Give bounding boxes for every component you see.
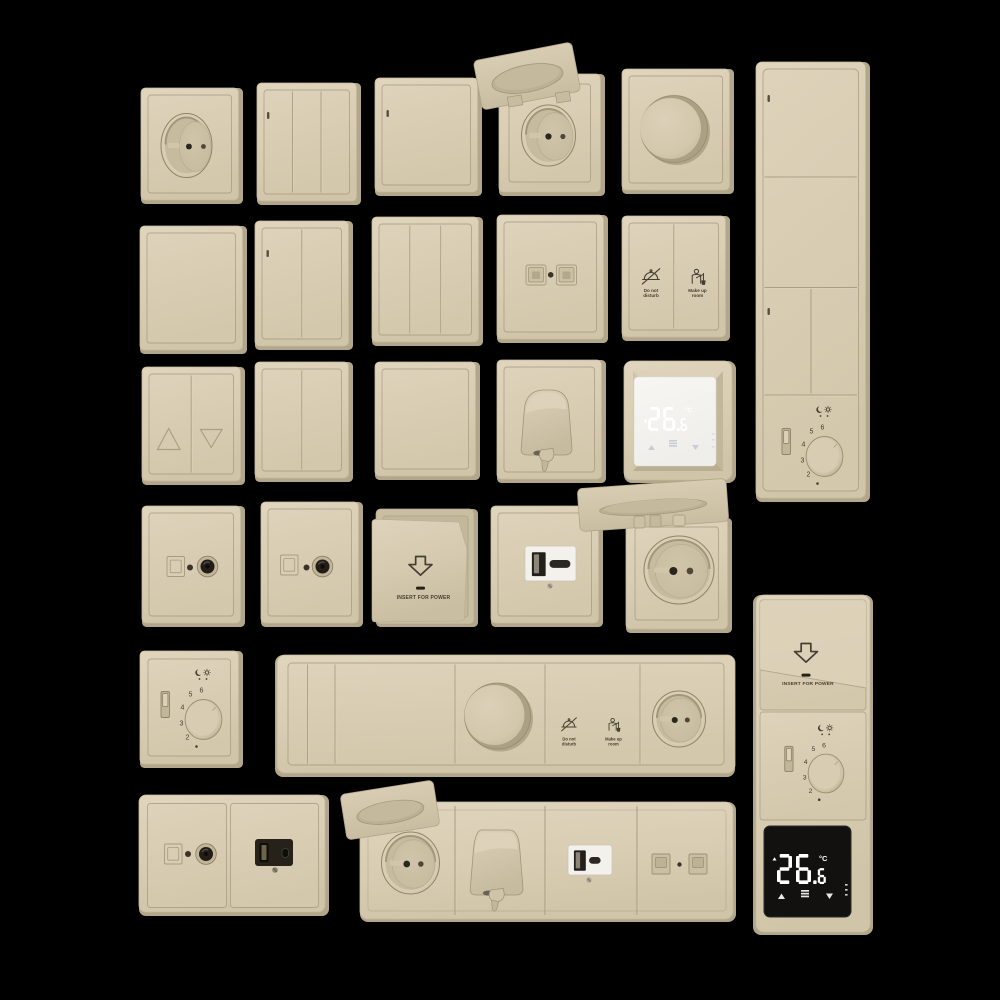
svg-text:2: 2 — [807, 472, 811, 479]
svg-text:4: 4 — [181, 705, 185, 712]
svg-text:6: 6 — [821, 425, 825, 432]
svg-text:2: 2 — [809, 788, 813, 795]
svg-text:4: 4 — [802, 442, 806, 449]
svg-text:room: room — [608, 741, 619, 746]
svg-text:6: 6 — [822, 742, 826, 749]
svg-text:°C: °C — [685, 406, 693, 414]
svg-text:4: 4 — [804, 759, 808, 766]
svg-text:room: room — [692, 293, 703, 298]
svg-text:6: 6 — [200, 688, 204, 695]
svg-text:2: 2 — [186, 735, 190, 742]
svg-text:disturb: disturb — [562, 741, 577, 746]
svg-text:5: 5 — [811, 746, 815, 753]
svg-text:°C: °C — [819, 854, 828, 863]
svg-text:5: 5 — [810, 429, 814, 436]
svg-text:5: 5 — [189, 692, 193, 699]
svg-text:3: 3 — [803, 774, 807, 781]
svg-text:3: 3 — [180, 721, 184, 728]
svg-text:disturb: disturb — [643, 293, 659, 298]
svg-text:INSERT FOR POWER: INSERT FOR POWER — [782, 681, 834, 687]
svg-text:3: 3 — [801, 458, 805, 465]
svg-text:INSERT FOR POWER: INSERT FOR POWER — [397, 595, 451, 601]
